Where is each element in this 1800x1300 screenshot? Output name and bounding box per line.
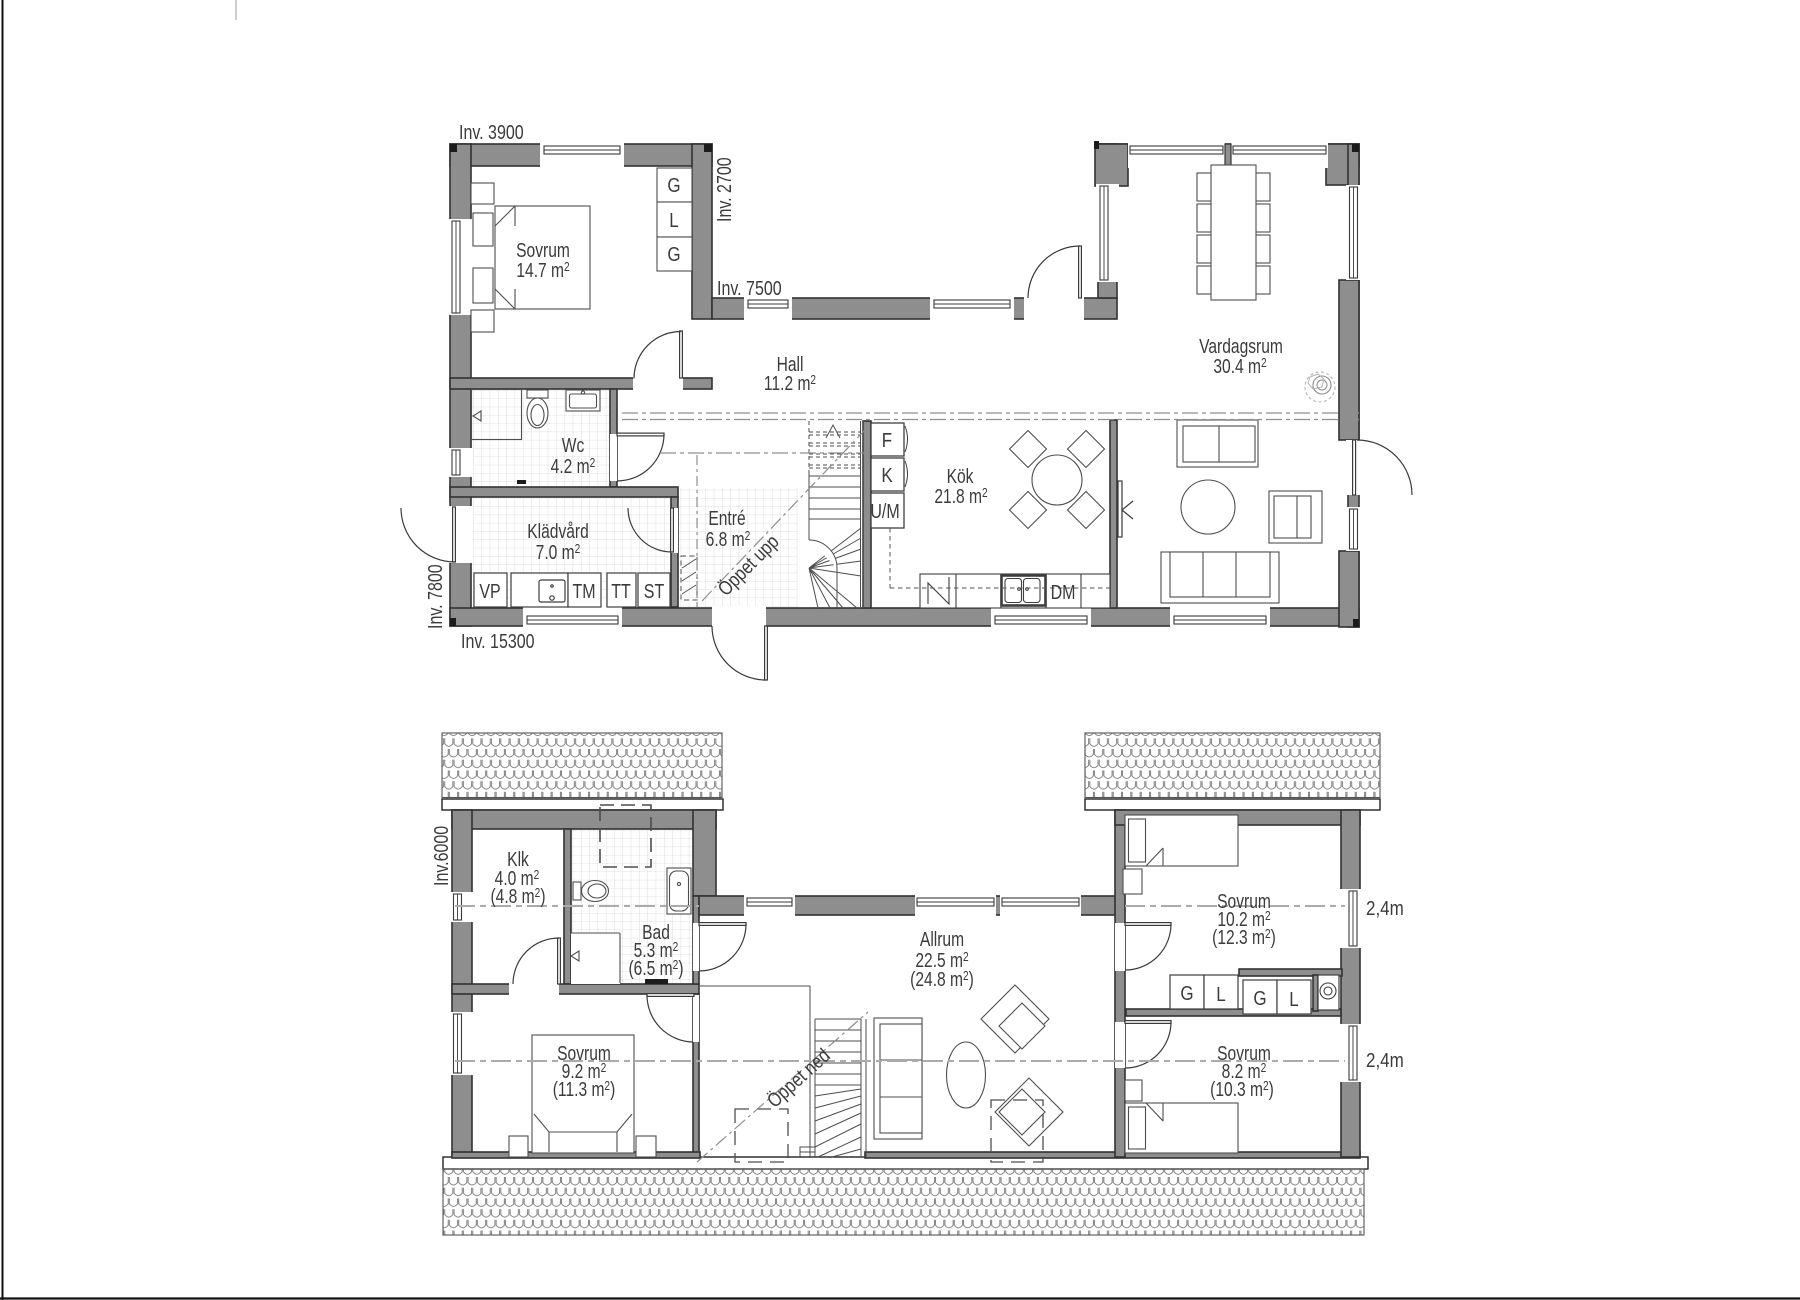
svg-text:14.7 m2: 14.7 m2 <box>516 259 569 281</box>
svg-text:G: G <box>667 174 680 197</box>
svg-text:VP: VP <box>479 580 500 602</box>
svg-text:TT: TT <box>611 580 631 602</box>
svg-text:Vardagsrum: Vardagsrum <box>1199 335 1283 357</box>
svg-text:21.8 m2: 21.8 m2 <box>934 485 987 507</box>
svg-text:L: L <box>1289 988 1298 1011</box>
svg-text:2,4m: 2,4m <box>1366 1049 1404 1072</box>
svg-text:Allrum: Allrum <box>920 928 964 950</box>
svg-text:6.8 m2: 6.8 m2 <box>706 528 751 550</box>
svg-text:Sovrum: Sovrum <box>516 239 570 261</box>
svg-text:30.4 m2: 30.4 m2 <box>1213 355 1266 377</box>
svg-text:Inv. 2700: Inv. 2700 <box>713 157 735 222</box>
svg-text:ST: ST <box>644 580 664 602</box>
svg-text:11.2 m2: 11.2 m2 <box>764 372 816 394</box>
svg-text:K: K <box>881 464 893 487</box>
svg-text:Inv. 7800: Inv. 7800 <box>424 564 446 629</box>
svg-text:Klädvård: Klädvård <box>527 520 589 542</box>
svg-text:2,4m: 2,4m <box>1366 897 1404 920</box>
svg-text:Wc: Wc <box>562 434 585 456</box>
svg-text:G: G <box>1180 982 1193 1005</box>
svg-text:U/M: U/M <box>870 500 899 522</box>
svg-text:Inv. 15300: Inv. 15300 <box>461 630 535 652</box>
svg-text:Inv.6000: Inv.6000 <box>430 826 452 886</box>
svg-text:Entré: Entré <box>708 507 745 529</box>
svg-text:L: L <box>669 209 678 232</box>
svg-text:Inv. 3900: Inv. 3900 <box>459 121 524 143</box>
svg-text:L: L <box>1216 983 1225 1006</box>
svg-text:F: F <box>882 429 892 452</box>
svg-text:G: G <box>1253 987 1266 1010</box>
svg-text:G: G <box>667 243 680 266</box>
svg-text:7.0 m2: 7.0 m2 <box>536 541 581 563</box>
svg-text:4.2 m2: 4.2 m2 <box>551 455 596 477</box>
svg-text:TM: TM <box>572 580 595 602</box>
svg-text:DM: DM <box>1051 581 1076 603</box>
svg-text:Kök: Kök <box>947 465 974 487</box>
svg-text:Inv. 7500: Inv. 7500 <box>717 277 782 299</box>
